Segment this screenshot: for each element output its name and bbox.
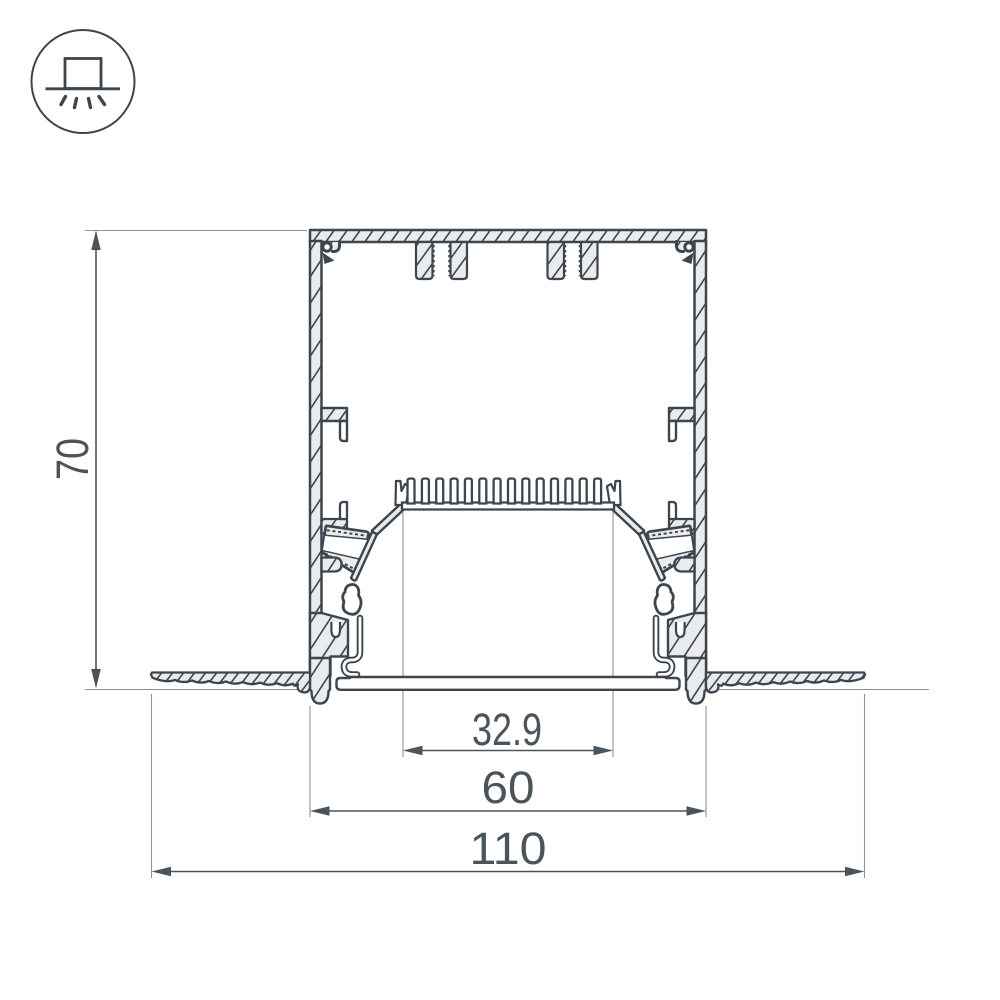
svg-text:32.9: 32.9 <box>472 704 542 755</box>
svg-text:110: 110 <box>470 823 547 874</box>
svg-text:70: 70 <box>47 438 98 480</box>
svg-text:60: 60 <box>482 762 535 813</box>
